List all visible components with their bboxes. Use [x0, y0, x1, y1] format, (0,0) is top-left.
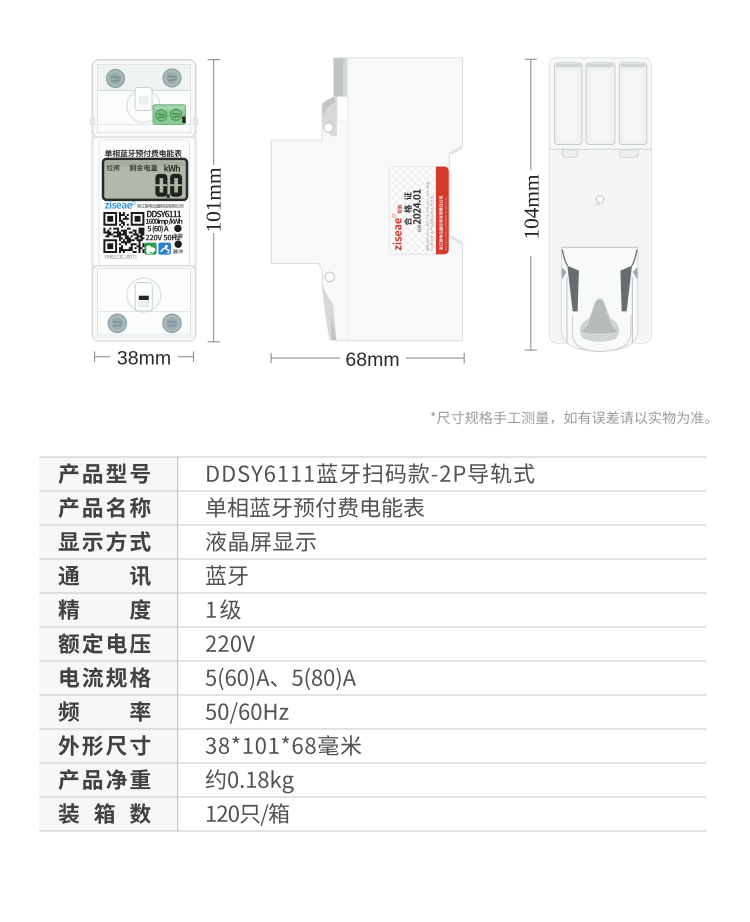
- svg-text:104mm: 104mm: [520, 174, 544, 240]
- svg-text:38mm: 38mm: [117, 348, 171, 370]
- svg-text:68mm: 68mm: [345, 349, 399, 371]
- svg-text:101mm: 101mm: [201, 167, 225, 233]
